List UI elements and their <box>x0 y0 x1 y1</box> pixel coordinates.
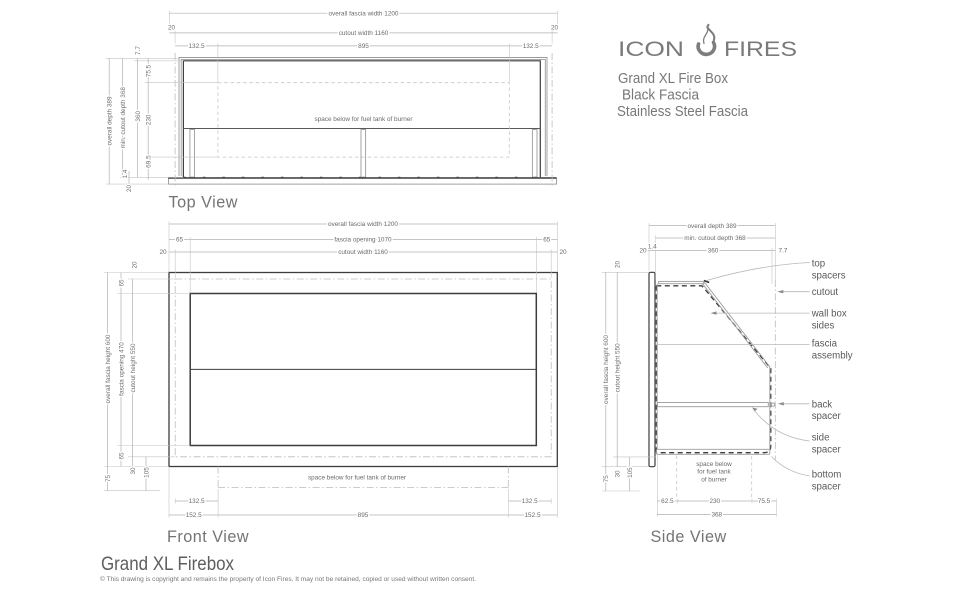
svg-text:Top View: Top View <box>169 194 238 212</box>
svg-text:min. cutout depth 368: min. cutout depth 368 <box>120 87 127 149</box>
svg-text:895: 895 <box>358 43 369 50</box>
svg-text:cutout width 1160: cutout width 1160 <box>339 30 389 37</box>
svg-text:1.4: 1.4 <box>648 244 657 251</box>
svg-text:Grand XL Fire Box: Grand XL Fire Box <box>618 70 728 87</box>
svg-text:132.5: 132.5 <box>189 498 205 505</box>
svg-text:ICON: ICON <box>618 38 684 61</box>
svg-text:top: top <box>812 259 825 270</box>
svg-text:132.5: 132.5 <box>523 43 539 50</box>
svg-text:cutout width 1160: cutout width 1160 <box>338 249 388 256</box>
svg-text:20: 20 <box>551 25 559 32</box>
svg-text:Side View: Side View <box>651 528 727 546</box>
svg-text:20: 20 <box>639 248 647 255</box>
svg-text:spacer: spacer <box>812 481 842 492</box>
svg-text:1.4: 1.4 <box>122 169 129 178</box>
svg-text:wall box: wall box <box>811 309 847 320</box>
svg-text:overall depth 389: overall depth 389 <box>687 223 736 230</box>
svg-text:side: side <box>812 433 830 444</box>
svg-text:20: 20 <box>126 185 133 193</box>
svg-text:overall depth 389: overall depth 389 <box>107 96 114 145</box>
svg-text:20: 20 <box>168 25 176 32</box>
svg-text:20: 20 <box>559 249 567 256</box>
svg-text:fascia opening 470: fascia opening 470 <box>118 342 125 396</box>
svg-text:cutout: cutout <box>812 287 839 298</box>
svg-text:360: 360 <box>135 111 142 122</box>
svg-text:sides: sides <box>812 320 835 331</box>
svg-text:overall fascia height 600: overall fascia height 600 <box>603 335 610 404</box>
svg-text:cutout height 550: cutout height 550 <box>615 343 622 392</box>
svg-text:75.5: 75.5 <box>758 498 771 505</box>
svg-text:65: 65 <box>543 237 551 244</box>
svg-text:20: 20 <box>132 261 139 269</box>
svg-text:368: 368 <box>711 512 722 519</box>
svg-text:Grand XL Firebox: Grand XL Firebox <box>101 553 234 575</box>
svg-text:30: 30 <box>130 467 137 475</box>
svg-text:230: 230 <box>709 498 720 505</box>
svg-text:75.5: 75.5 <box>146 64 153 77</box>
svg-text:fascia: fascia <box>812 339 838 350</box>
svg-text:65: 65 <box>176 237 184 244</box>
svg-text:space below for fuel tank of b: space below for fuel tank of burner <box>314 116 413 123</box>
svg-text:Stainless Steel Fascia: Stainless Steel Fascia <box>617 103 749 120</box>
svg-text:30: 30 <box>615 470 622 478</box>
svg-text:Black Fascia: Black Fascia <box>622 87 700 104</box>
svg-text:min. cutout depth 368: min. cutout depth 368 <box>684 235 746 242</box>
svg-text:space below: space below <box>696 461 732 468</box>
svg-text:895: 895 <box>358 512 369 519</box>
svg-text:75: 75 <box>603 475 610 483</box>
svg-text:152.5: 152.5 <box>186 512 202 519</box>
svg-text:75: 75 <box>105 475 112 483</box>
svg-text:bottom: bottom <box>812 470 842 481</box>
svg-text:230: 230 <box>146 114 153 125</box>
svg-text:spacer: spacer <box>812 411 842 422</box>
svg-text:Front View: Front View <box>167 528 249 546</box>
svg-text:fascia opening 1070: fascia opening 1070 <box>334 237 392 244</box>
svg-text:69.5: 69.5 <box>146 155 153 168</box>
svg-text:spacer: spacer <box>812 444 842 455</box>
svg-text:cutout height 550: cutout height 550 <box>130 343 137 392</box>
svg-text:back: back <box>812 399 833 410</box>
svg-text:FIRES: FIRES <box>724 38 797 61</box>
svg-text:20: 20 <box>615 261 622 269</box>
svg-text:overall fascia height 600: overall fascia height 600 <box>105 334 112 403</box>
svg-text:overall fascia width 1200: overall fascia width 1200 <box>328 221 398 228</box>
svg-text:© This drawing is copyright an: © This drawing is copyright and remains … <box>100 576 476 583</box>
svg-text:spacers: spacers <box>812 270 846 281</box>
svg-text:152.5: 152.5 <box>525 512 541 519</box>
svg-text:65: 65 <box>118 279 125 287</box>
svg-text:360: 360 <box>708 248 719 255</box>
svg-text:of burner: of burner <box>701 476 727 483</box>
svg-text:132.5: 132.5 <box>189 43 205 50</box>
svg-text:105: 105 <box>627 467 634 478</box>
svg-text:space below for fuel tank of b: space below for fuel tank of burner <box>308 475 407 482</box>
svg-text:65: 65 <box>118 452 125 460</box>
svg-text:132.5: 132.5 <box>522 498 538 505</box>
svg-text:for fuel tank: for fuel tank <box>697 469 731 476</box>
svg-text:20: 20 <box>159 249 167 256</box>
svg-text:7.7: 7.7 <box>779 248 788 255</box>
svg-text:assembly: assembly <box>812 350 853 361</box>
svg-text:105: 105 <box>143 467 150 478</box>
svg-text:7.7: 7.7 <box>135 46 142 55</box>
svg-text:62.5: 62.5 <box>661 498 674 505</box>
svg-text:overall fascia width 1200: overall fascia width 1200 <box>329 10 399 17</box>
